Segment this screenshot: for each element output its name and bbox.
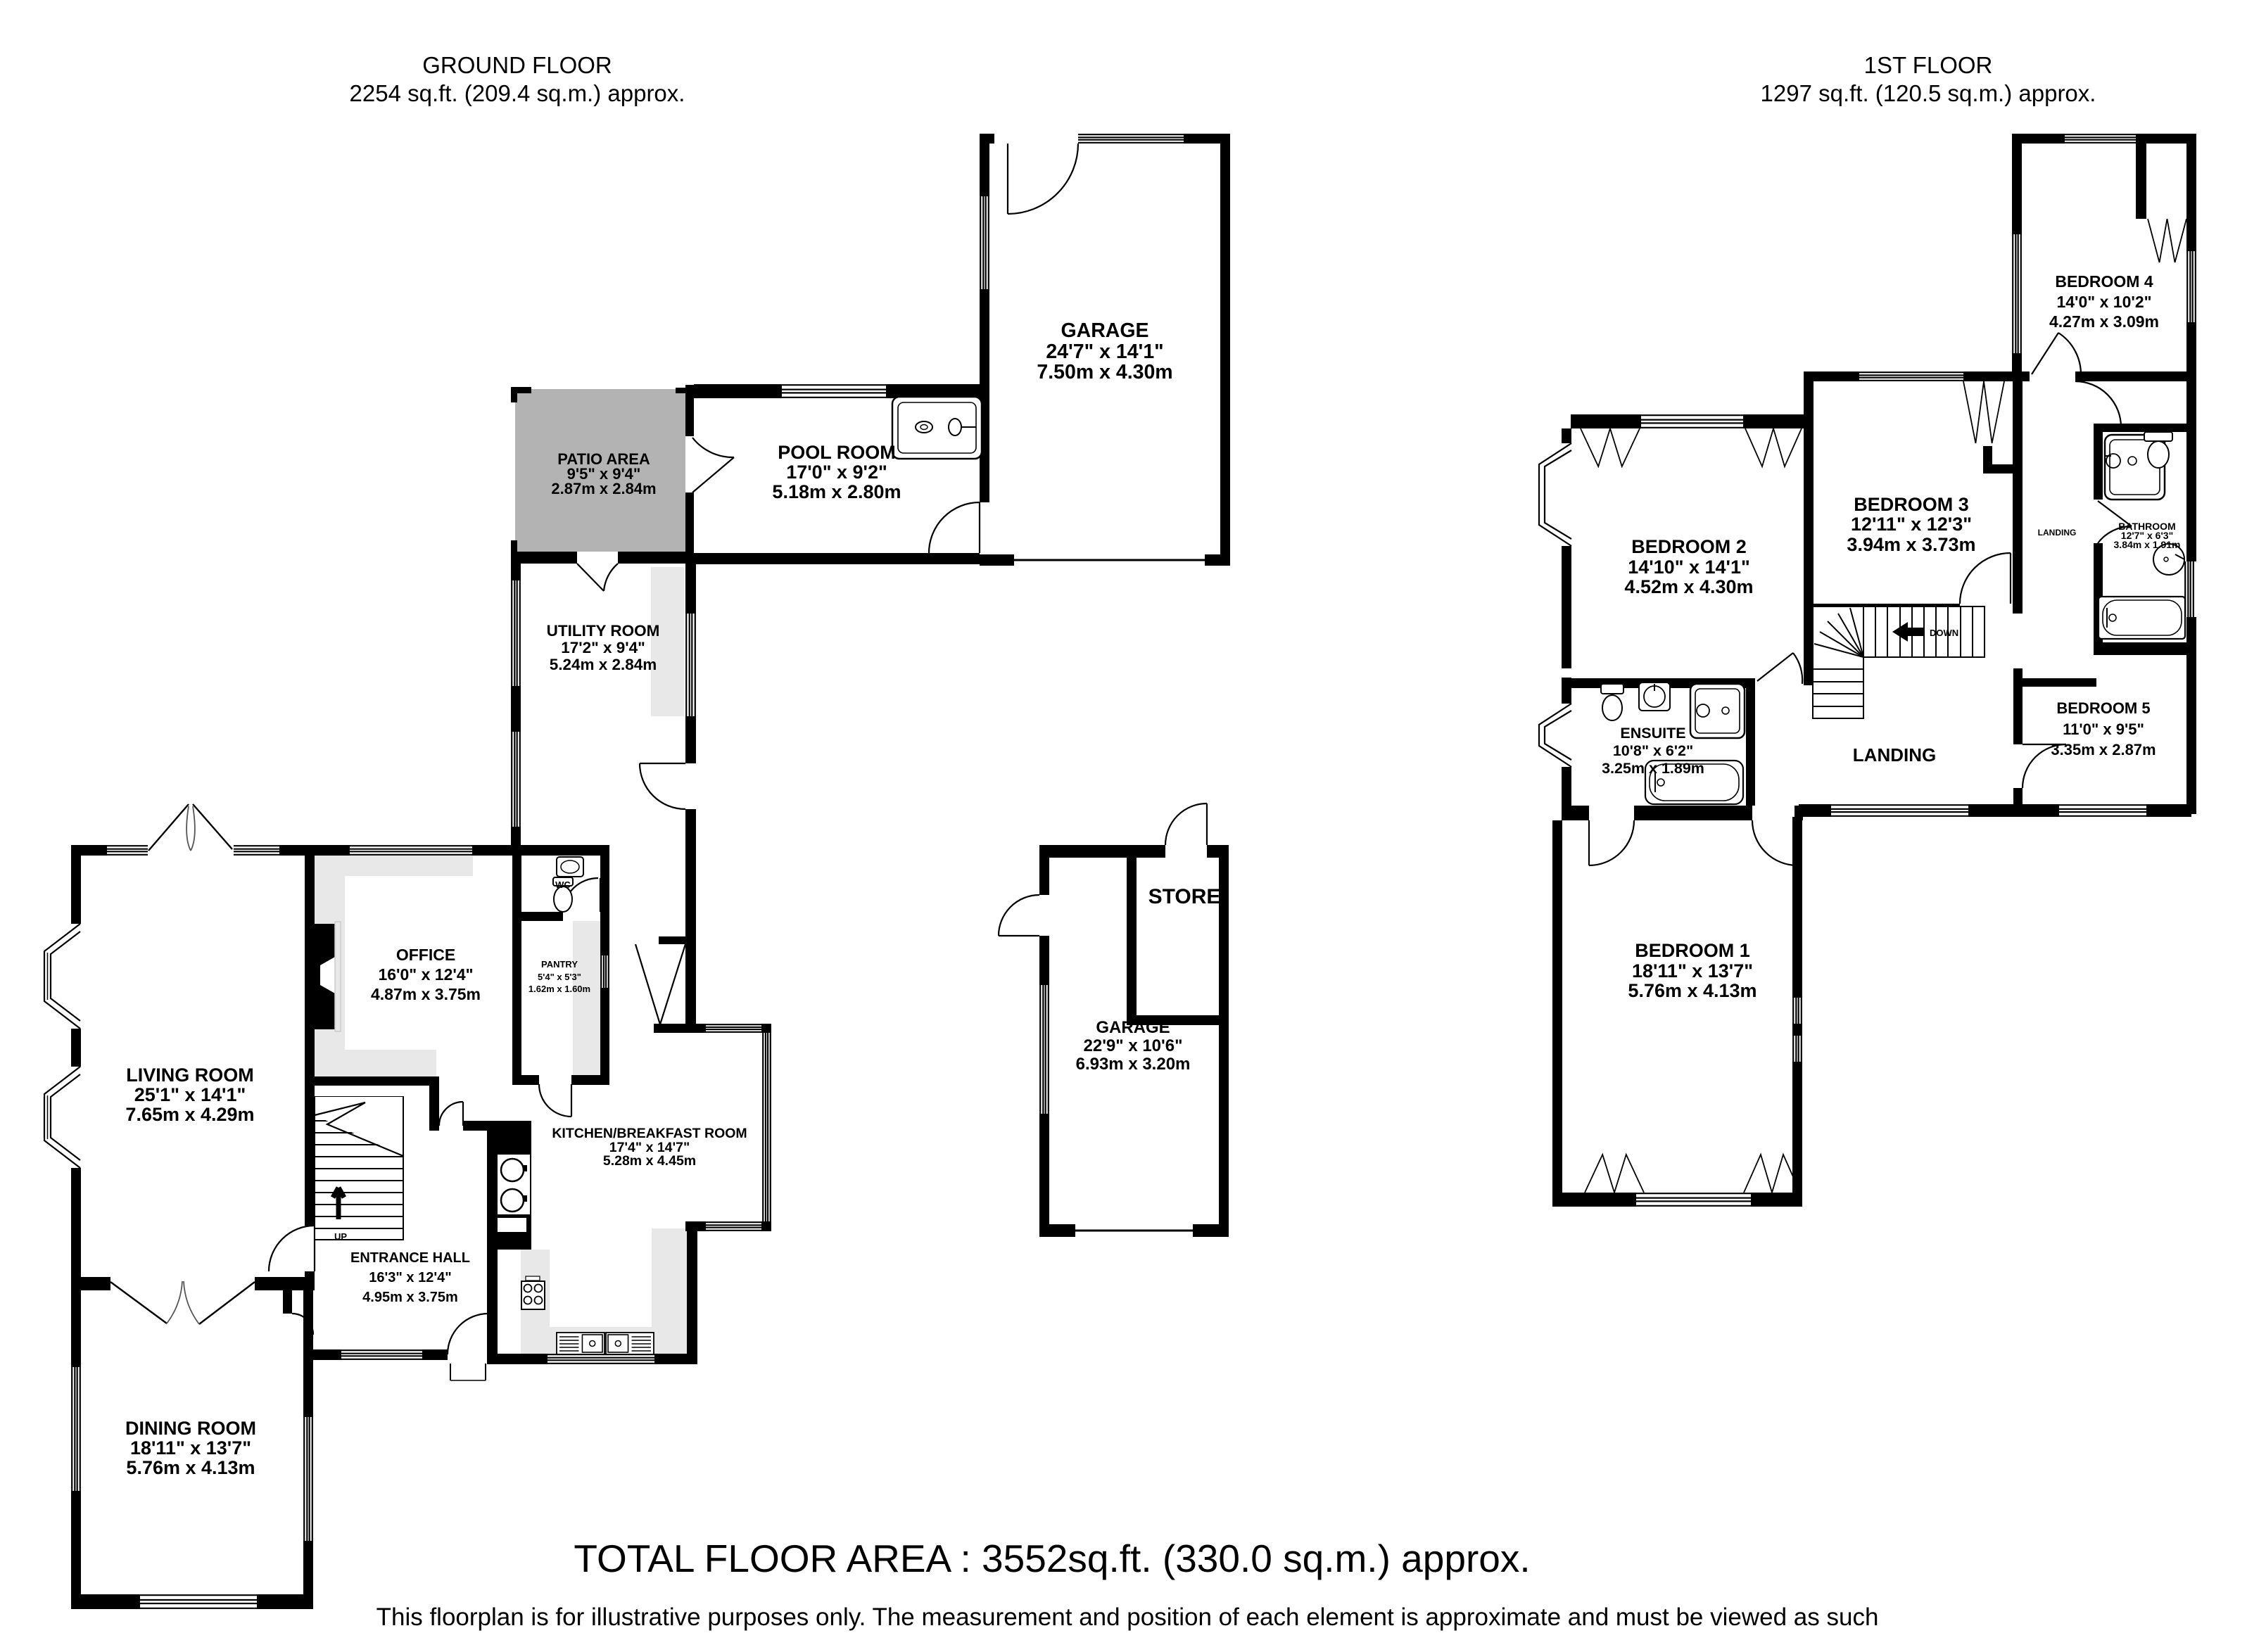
svg-text:7.65m x 4.29m: 7.65m x 4.29m bbox=[125, 1104, 254, 1125]
svg-text:16'0" x 12'4": 16'0" x 12'4" bbox=[378, 965, 473, 984]
svg-text:24'7" x 14'1": 24'7" x 14'1" bbox=[1046, 341, 1163, 363]
svg-text:POOL ROOM: POOL ROOM bbox=[778, 442, 896, 463]
svg-text:1297 sq.ft. (120.5 sq.m.) appr: 1297 sq.ft. (120.5 sq.m.) approx. bbox=[1761, 80, 2096, 106]
svg-text:4.87m x 3.75m: 4.87m x 3.75m bbox=[371, 985, 481, 1003]
svg-text:GROUND FLOOR: GROUND FLOOR bbox=[422, 52, 612, 78]
svg-text:LANDING: LANDING bbox=[1853, 744, 1936, 765]
svg-text:22'9" x 10'6": 22'9" x 10'6" bbox=[1084, 1036, 1183, 1055]
svg-text:KITCHEN/BREAKFAST ROOM: KITCHEN/BREAKFAST ROOM bbox=[552, 1126, 747, 1141]
svg-text:17'0" x 9'2": 17'0" x 9'2" bbox=[786, 462, 887, 483]
svg-text:12'11" x 12'3": 12'11" x 12'3" bbox=[1851, 514, 1972, 535]
svg-text:UP: UP bbox=[334, 1231, 347, 1242]
svg-text:2254 sq.ft. (209.4 sq.m.) appr: 2254 sq.ft. (209.4 sq.m.) approx. bbox=[350, 80, 685, 106]
svg-text:DINING ROOM: DINING ROOM bbox=[125, 1418, 256, 1439]
svg-text:5'4" x 5'3": 5'4" x 5'3" bbox=[538, 972, 581, 982]
svg-text:4.27m x 3.09m: 4.27m x 3.09m bbox=[2049, 312, 2159, 331]
svg-text:LIVING ROOM: LIVING ROOM bbox=[126, 1065, 254, 1086]
svg-text:GARAGE: GARAGE bbox=[1061, 319, 1148, 342]
svg-text:1ST FLOOR: 1ST FLOOR bbox=[1864, 52, 1993, 78]
svg-text:14'0" x 10'2": 14'0" x 10'2" bbox=[2056, 293, 2151, 311]
svg-text:OFFICE: OFFICE bbox=[396, 946, 455, 964]
svg-text:10'8" x 6'2": 10'8" x 6'2" bbox=[1613, 742, 1693, 759]
svg-text:ENSUITE: ENSUITE bbox=[1620, 725, 1685, 742]
svg-text:PANTRY: PANTRY bbox=[541, 959, 578, 970]
svg-text:This floorplan is for illustra: This floorplan is for illustrative purpo… bbox=[376, 1603, 1879, 1631]
svg-text:BEDROOM 4: BEDROOM 4 bbox=[2055, 272, 2153, 291]
svg-text:5.18m x 2.80m: 5.18m x 2.80m bbox=[772, 481, 901, 502]
svg-text:5.76m x 4.13m: 5.76m x 4.13m bbox=[1628, 980, 1757, 1001]
svg-text:5.24m x 2.84m: 5.24m x 2.84m bbox=[550, 656, 657, 673]
svg-text:18'11" x 13'7": 18'11" x 13'7" bbox=[130, 1437, 251, 1459]
svg-text:1.62m x 1.60m: 1.62m x 1.60m bbox=[528, 984, 590, 994]
svg-text:7.50m x 4.30m: 7.50m x 4.30m bbox=[1037, 361, 1172, 383]
svg-text:4.52m x 4.30m: 4.52m x 4.30m bbox=[1624, 576, 1753, 597]
svg-text:5.76m x 4.13m: 5.76m x 4.13m bbox=[126, 1457, 255, 1478]
svg-text:WC: WC bbox=[555, 879, 571, 890]
svg-text:4.95m x 3.75m: 4.95m x 3.75m bbox=[362, 1290, 458, 1305]
svg-text:LANDING: LANDING bbox=[2038, 528, 2077, 538]
svg-text:6.93m x 3.20m: 6.93m x 3.20m bbox=[1076, 1055, 1191, 1074]
svg-text:BEDROOM 3: BEDROOM 3 bbox=[1854, 494, 1969, 515]
svg-text:17'2" x 9'4": 17'2" x 9'4" bbox=[561, 639, 645, 656]
svg-text:5.28m x 4.45m: 5.28m x 4.45m bbox=[603, 1153, 696, 1169]
svg-text:3.84m x 1.91m: 3.84m x 1.91m bbox=[2114, 539, 2181, 550]
svg-text:25'1" x 14'1": 25'1" x 14'1" bbox=[134, 1084, 246, 1105]
svg-text:11'0" x 9'5": 11'0" x 9'5" bbox=[2063, 720, 2144, 738]
svg-text:GARAGE: GARAGE bbox=[1096, 1018, 1170, 1037]
svg-text:DOWN: DOWN bbox=[1930, 628, 1958, 638]
svg-text:ENTRANCE HALL: ENTRANCE HALL bbox=[350, 1250, 470, 1266]
svg-text:BEDROOM 1: BEDROOM 1 bbox=[1635, 940, 1750, 961]
svg-text:2.87m x 2.84m: 2.87m x 2.84m bbox=[551, 480, 656, 497]
svg-text:16'3" x 12'4": 16'3" x 12'4" bbox=[369, 1270, 451, 1285]
svg-text:STORE: STORE bbox=[1148, 885, 1221, 908]
svg-text:BEDROOM 5: BEDROOM 5 bbox=[2056, 699, 2150, 717]
svg-text:UTILITY ROOM: UTILITY ROOM bbox=[547, 622, 660, 640]
svg-text:TOTAL FLOOR AREA : 3552sq.ft.: TOTAL FLOOR AREA : 3552sq.ft. (330.0 sq.… bbox=[574, 1537, 1530, 1580]
svg-text:BEDROOM 2: BEDROOM 2 bbox=[1631, 536, 1747, 557]
svg-text:3.94m x 3.73m: 3.94m x 3.73m bbox=[1847, 534, 1975, 555]
svg-text:3.35m x 2.87m: 3.35m x 2.87m bbox=[2051, 741, 2156, 758]
svg-text:14'10" x 14'1": 14'10" x 14'1" bbox=[1628, 557, 1750, 578]
svg-text:18'11" x 13'7": 18'11" x 13'7" bbox=[1632, 960, 1753, 981]
svg-text:3.25m x 1.89m: 3.25m x 1.89m bbox=[1602, 760, 1704, 777]
